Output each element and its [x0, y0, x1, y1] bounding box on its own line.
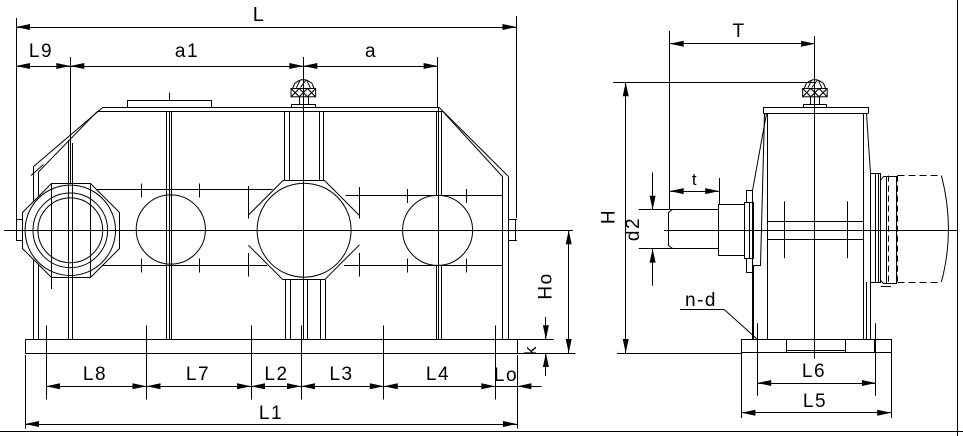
svg-text:a1: a1: [175, 41, 199, 62]
svg-text:Ho: Ho: [536, 272, 557, 299]
svg-text:Lo: Lo: [494, 365, 518, 386]
svg-text:L8: L8: [83, 364, 107, 385]
svg-text:k: k: [521, 345, 540, 355]
svg-text:L: L: [253, 4, 266, 26]
svg-text:t: t: [692, 170, 698, 189]
svg-text:d2: d2: [623, 217, 644, 241]
svg-text:a: a: [365, 41, 377, 62]
svg-text:T: T: [732, 21, 745, 42]
svg-text:L1: L1: [259, 403, 283, 424]
svg-text:H: H: [599, 209, 620, 224]
svg-text:n-d: n-d: [685, 290, 717, 311]
svg-text:L4: L4: [426, 364, 450, 385]
svg-text:L2: L2: [264, 364, 288, 385]
svg-text:L5: L5: [803, 391, 827, 412]
svg-text:L3: L3: [329, 364, 353, 385]
svg-text:L9: L9: [29, 41, 53, 62]
svg-text:L7: L7: [186, 364, 210, 385]
svg-text:L6: L6: [802, 361, 826, 382]
